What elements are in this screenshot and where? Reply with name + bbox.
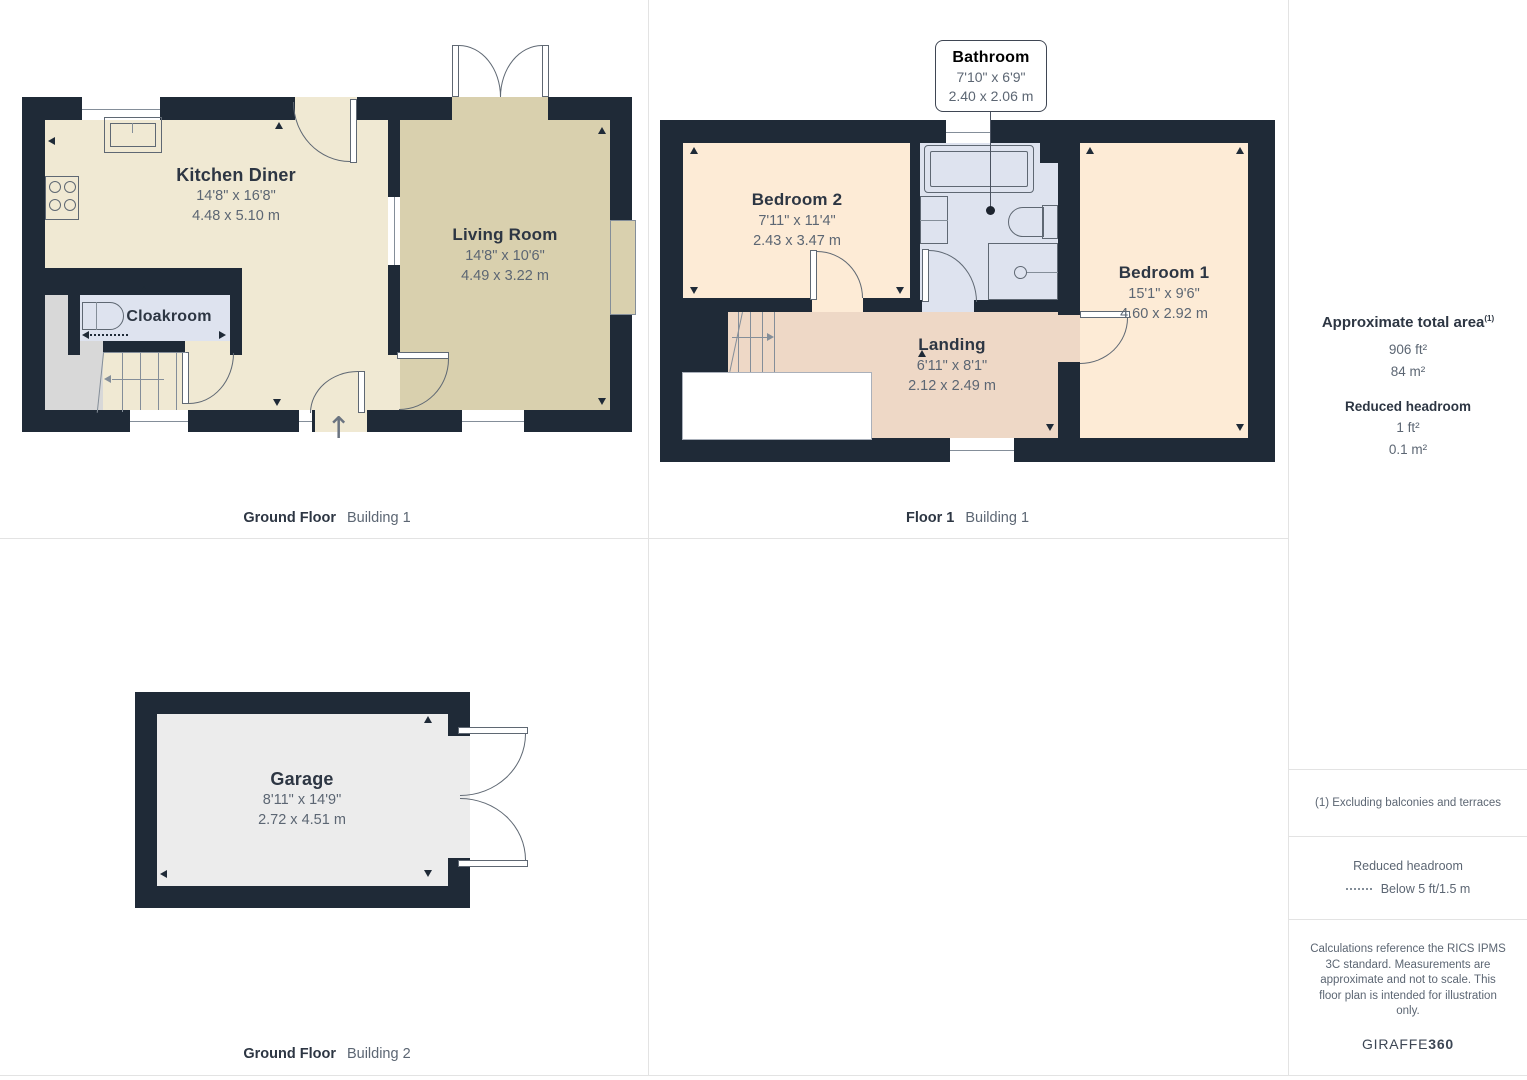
legend-row: Below 5 ft/1.5 m: [1346, 880, 1471, 898]
footnote-text: (1) Excluding balconies and terraces: [1315, 795, 1501, 811]
total-area-m: 84 m²: [1391, 361, 1426, 383]
floorplan-sheet: ↑ Kitchen Diner 14'8" x 16'8" 4.48 x 5.1…: [0, 0, 1527, 1080]
legend-title: Reduced headroom: [1353, 857, 1463, 875]
disclaimer-text: Calculations reference the RICS IPMS 3C …: [1310, 942, 1506, 1020]
footnote-mark: (1): [1484, 314, 1494, 323]
reduced-headroom-m: 0.1 m²: [1389, 439, 1427, 461]
sidebar: Approximate total area(1) 906 ft² 84 m² …: [0, 0, 1527, 1080]
total-area-title: Approximate total area(1): [1322, 309, 1494, 333]
legend-item-text: Below 5 ft/1.5 m: [1381, 880, 1471, 898]
sidebar-legend: Reduced headroom Below 5 ft/1.5 m: [1289, 836, 1527, 919]
sidebar-area-summary: Approximate total area(1) 906 ft² 84 m² …: [1289, 0, 1527, 769]
dotted-line-swatch: [1346, 888, 1372, 890]
giraffe360-logo: GIRAFFE360: [1362, 1036, 1454, 1052]
total-area-ft: 906 ft²: [1389, 339, 1427, 361]
reduced-headroom-title: Reduced headroom: [1345, 397, 1471, 417]
reduced-headroom-ft: 1 ft²: [1396, 417, 1419, 439]
sidebar-disclaimer: Calculations reference the RICS IPMS 3C …: [1289, 919, 1527, 1075]
sidebar-footnote: (1) Excluding balconies and terraces: [1289, 769, 1527, 836]
